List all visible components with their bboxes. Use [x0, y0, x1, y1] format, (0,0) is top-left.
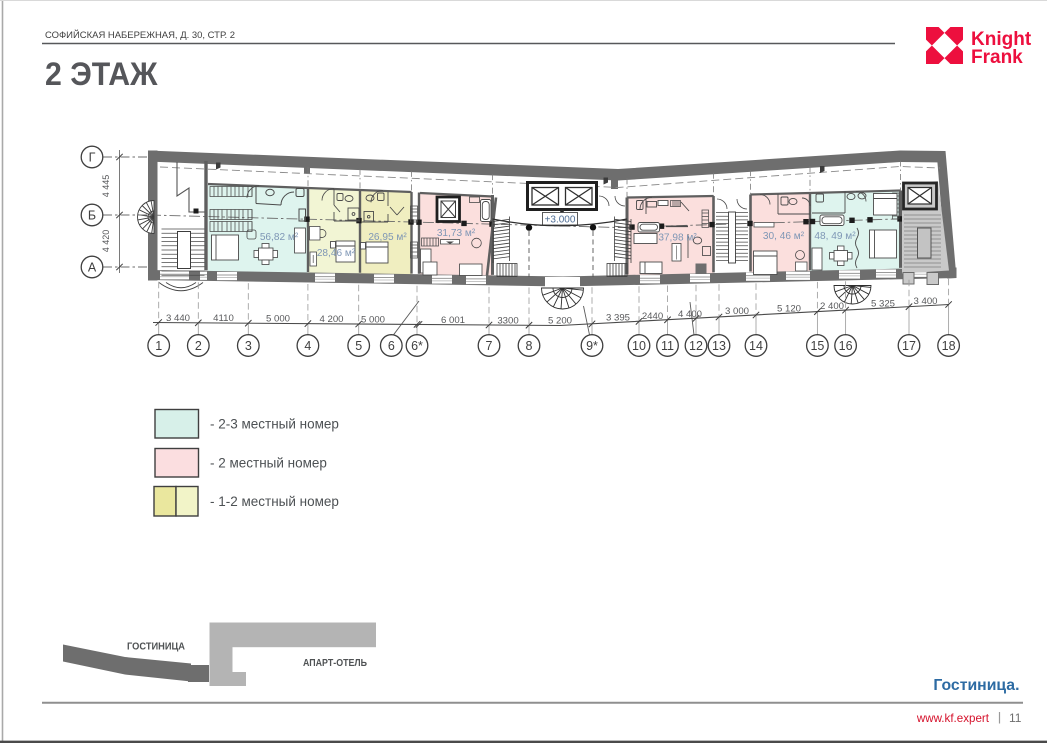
svg-text:4 420: 4 420 — [101, 230, 111, 253]
svg-text:5 000: 5 000 — [266, 314, 290, 325]
svg-text:5 120: 5 120 — [777, 303, 801, 314]
svg-text:2440: 2440 — [642, 311, 663, 322]
svg-text:6 001: 6 001 — [441, 315, 465, 326]
svg-text:15: 15 — [810, 339, 824, 353]
svg-text:4 200: 4 200 — [319, 314, 343, 325]
svg-text:Гостиница.: Гостиница. — [933, 677, 1019, 694]
svg-text:56,82 м²: 56,82 м² — [260, 232, 299, 243]
svg-text:А: А — [88, 261, 97, 275]
svg-text:30, 46 м²: 30, 46 м² — [763, 231, 805, 242]
svg-text:4: 4 — [304, 339, 311, 353]
svg-text:18: 18 — [942, 339, 956, 353]
svg-text:+3.000: +3.000 — [545, 214, 576, 225]
svg-text:48, 49 м²: 48, 49 м² — [814, 231, 856, 242]
svg-text:Б: Б — [88, 209, 96, 223]
svg-text:9*: 9* — [586, 339, 598, 353]
svg-text:5 200: 5 200 — [548, 316, 572, 327]
svg-text:11: 11 — [661, 339, 674, 353]
svg-text:4 445: 4 445 — [101, 175, 111, 198]
svg-text:3 400: 3 400 — [913, 296, 937, 307]
svg-text:26,95 м²: 26,95 м² — [368, 232, 407, 243]
svg-text:4 400: 4 400 — [678, 309, 702, 320]
svg-text:5 000: 5 000 — [361, 314, 385, 325]
svg-text:- 2-3 местный номер: - 2-3 местный номер — [210, 417, 339, 432]
svg-text:6*: 6* — [411, 339, 423, 353]
svg-text:АПАРТ-ОТЕЛЬ: АПАРТ-ОТЕЛЬ — [303, 658, 367, 669]
svg-text:3 395: 3 395 — [606, 313, 630, 324]
svg-text:31,73 м²: 31,73 м² — [437, 228, 476, 239]
svg-text:3 000: 3 000 — [725, 306, 749, 317]
svg-text:3 440: 3 440 — [166, 313, 190, 324]
svg-text:11: 11 — [1009, 711, 1022, 725]
svg-text:Г: Г — [89, 151, 96, 165]
svg-text:- 2 местный номер: - 2 местный номер — [210, 456, 327, 471]
svg-text:2 400: 2 400 — [820, 301, 844, 312]
svg-text:3300: 3300 — [497, 315, 518, 326]
svg-text:5: 5 — [355, 339, 362, 353]
svg-text:13: 13 — [712, 339, 726, 353]
svg-text:6: 6 — [388, 339, 395, 353]
svg-text:17: 17 — [902, 339, 916, 353]
svg-text:2 ЭТАЖ: 2 ЭТАЖ — [45, 56, 158, 92]
svg-text:16: 16 — [839, 339, 853, 353]
svg-text:1: 1 — [155, 339, 162, 353]
svg-text:12: 12 — [689, 339, 703, 353]
svg-text:2: 2 — [195, 339, 202, 353]
svg-text:7: 7 — [486, 339, 493, 353]
svg-text:5 325: 5 325 — [871, 298, 895, 309]
svg-text:www.kf.expert: www.kf.expert — [916, 712, 990, 725]
svg-text:8: 8 — [526, 339, 533, 353]
svg-text:37,98 м²: 37,98 м² — [658, 233, 697, 244]
svg-text:10: 10 — [632, 339, 646, 353]
svg-text:СОФИЙСКАЯ НАБЕРЕЖНАЯ, Д. 30, С: СОФИЙСКАЯ НАБЕРЕЖНАЯ, Д. 30, СТР. 2 — [45, 29, 235, 40]
svg-text:4110: 4110 — [213, 313, 234, 324]
svg-text:14: 14 — [749, 339, 763, 353]
svg-text:Frank: Frank — [971, 47, 1023, 68]
svg-text:3: 3 — [245, 339, 252, 353]
svg-text:ГОСТИНИЦА: ГОСТИНИЦА — [127, 642, 185, 653]
svg-text:- 1-2 местный номер: - 1-2 местный номер — [210, 494, 339, 509]
svg-text:28,46 м²: 28,46 м² — [317, 248, 356, 259]
